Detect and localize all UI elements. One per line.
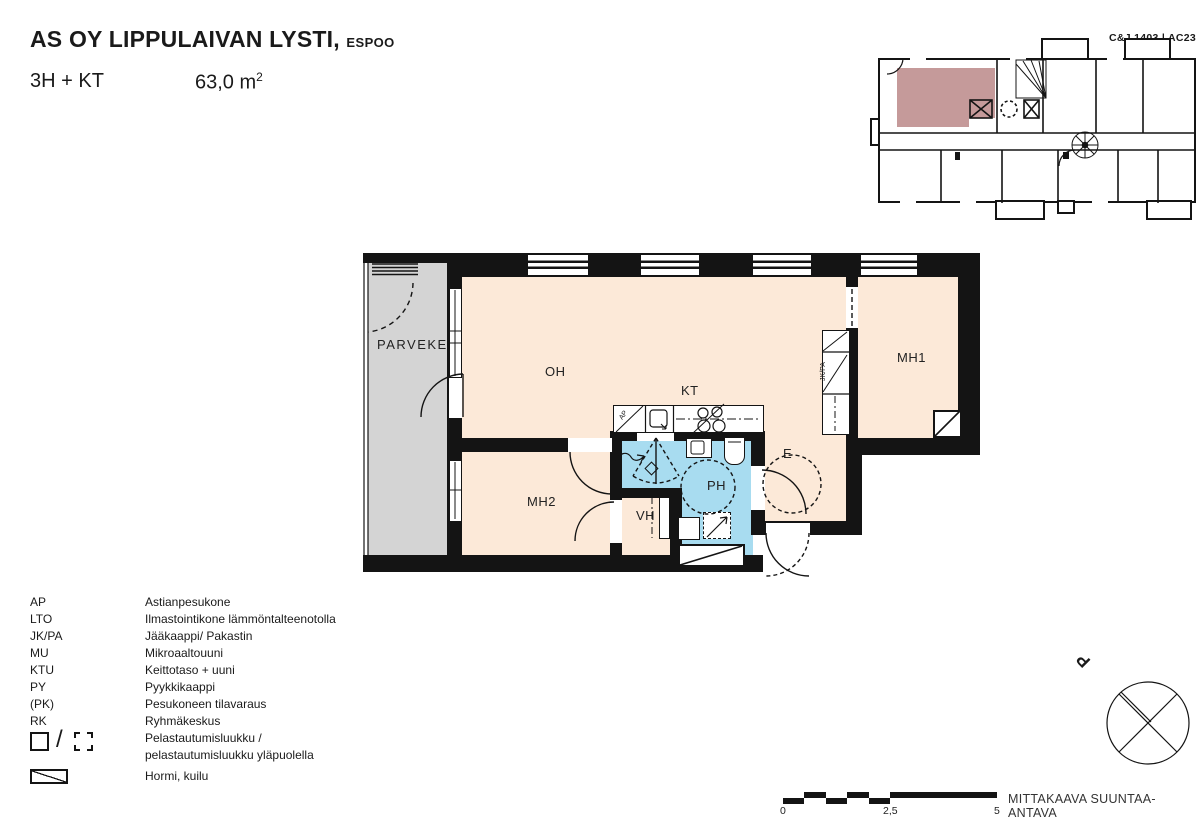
overview-window-tick <box>1092 200 1108 204</box>
scale-tick-end: 5 <box>994 805 1000 817</box>
unit-area: 63,0 m2 <box>195 70 263 95</box>
balcony-door-opening <box>449 378 462 418</box>
room-label-parveke: PARVEKE <box>377 337 448 352</box>
oh-mh1-opening <box>846 287 858 328</box>
scale-tick-0: 0 <box>780 805 786 817</box>
legend-row: PYPyykkikaappi <box>30 679 450 696</box>
vh-shelf <box>659 497 670 539</box>
overview-window-tick <box>900 200 916 204</box>
window-balcony-mh2 <box>449 460 462 522</box>
scale-disclaimer: MITTAKAAVA SUUNTAA-ANTAVA <box>1008 792 1202 819</box>
legend-row: MUMikroaaltouuni <box>30 645 450 662</box>
page-title: AS OY LIPPULAIVAN LYSTI, ESPOO <box>30 26 395 53</box>
entrance-door-opening <box>766 523 810 535</box>
room-label-e: E <box>783 446 792 461</box>
overview-wing-bottom-3 <box>1057 200 1075 214</box>
window <box>860 255 918 275</box>
room-label-oh: OH <box>545 364 566 379</box>
slash-separator: / <box>56 726 63 754</box>
legend-flue-desc: Hormi, kuilu <box>145 769 208 783</box>
overview-wing-top-2 <box>1124 38 1171 60</box>
mh2-door-opening <box>568 438 612 452</box>
window-balcony-oh <box>449 288 462 378</box>
room-label-vh: VH <box>636 508 655 523</box>
overview-window-tick <box>960 200 976 204</box>
room-parveke-fill <box>368 261 454 557</box>
overview-wing-bottom-1 <box>995 200 1045 220</box>
project-name: AS OY LIPPULAIVAN LYSTI, <box>30 26 340 52</box>
window <box>527 255 589 275</box>
project-location: ESPOO <box>346 35 394 50</box>
legend-row: RKRyhmäkeskus <box>30 713 450 730</box>
window <box>752 255 812 275</box>
room-label-ph: PH <box>707 478 726 493</box>
escape-hatch-above-icon <box>74 732 93 751</box>
wall-mh1-bottom <box>846 438 980 455</box>
bathroom-sink <box>686 438 712 458</box>
floor-plan-page: AS OY LIPPULAIVAN LYSTI, ESPOO 3H + KT 6… <box>0 0 1202 819</box>
room-label-mh1: MH1 <box>897 350 926 365</box>
window <box>640 255 700 275</box>
north-label: P <box>1073 649 1095 671</box>
overview-window-tick <box>1107 57 1123 61</box>
overview-wing-bottom-2 <box>1146 200 1192 220</box>
scale-bar: 0 2,5 5 <box>783 792 997 818</box>
wall-balcony-bottom <box>363 555 459 572</box>
overview-window-tick <box>1010 57 1026 61</box>
room-label-kt: KT <box>681 383 699 398</box>
escape-hatch-mh1 <box>933 410 962 438</box>
escape-hatch-icon <box>30 732 49 751</box>
overview-highlighted-unit <box>897 68 995 118</box>
flue-shaft <box>678 544 745 567</box>
fixture-label-jkpa: JK/PA <box>820 362 827 381</box>
legend-row: APAstianpesukone <box>30 594 450 611</box>
overview-highlighted-unit-step <box>897 115 969 127</box>
legend-hatch-desc-2: pelastautumisluukku yläpuolella <box>145 748 314 762</box>
laundry-cabinet <box>678 517 700 540</box>
toilet <box>724 437 745 465</box>
overview-window-tick <box>910 57 926 61</box>
overview-wing-top-1 <box>1041 38 1089 60</box>
fridge-freezer-cabinet <box>822 330 850 435</box>
building-overview: C&J 1403 | AC23 <box>870 30 1202 226</box>
legend-row: KTUKeittotaso + uuni <box>30 662 450 679</box>
washer-reservation-box <box>703 512 731 539</box>
legend-row: (PK)Pesukoneen tilavaraus <box>30 696 450 713</box>
kitchen-counter <box>613 405 764 433</box>
room-label-mh2: MH2 <box>527 494 556 509</box>
unit-type: 3H + KT <box>30 70 104 93</box>
vh-door-opening <box>610 500 622 543</box>
room-e-fill <box>763 440 848 523</box>
legend-hatch-desc-1: Pelastautumisluukku / <box>145 731 262 745</box>
legend-row: LTOIlmastointikone lämmöntalteenotolla <box>30 611 450 628</box>
legend: APAstianpesukone LTOIlmastointikone lämm… <box>30 594 450 730</box>
overview-left-protrusion <box>870 118 880 146</box>
ph-door-opening <box>751 466 765 510</box>
compass-icon <box>1107 682 1189 764</box>
legend-row: JK/PAJääkaappi/ Pakastin <box>30 628 450 645</box>
wall-balcony-top <box>363 253 459 263</box>
scale-tick-mid: 2,5 <box>883 805 898 817</box>
flue-icon <box>30 769 68 784</box>
